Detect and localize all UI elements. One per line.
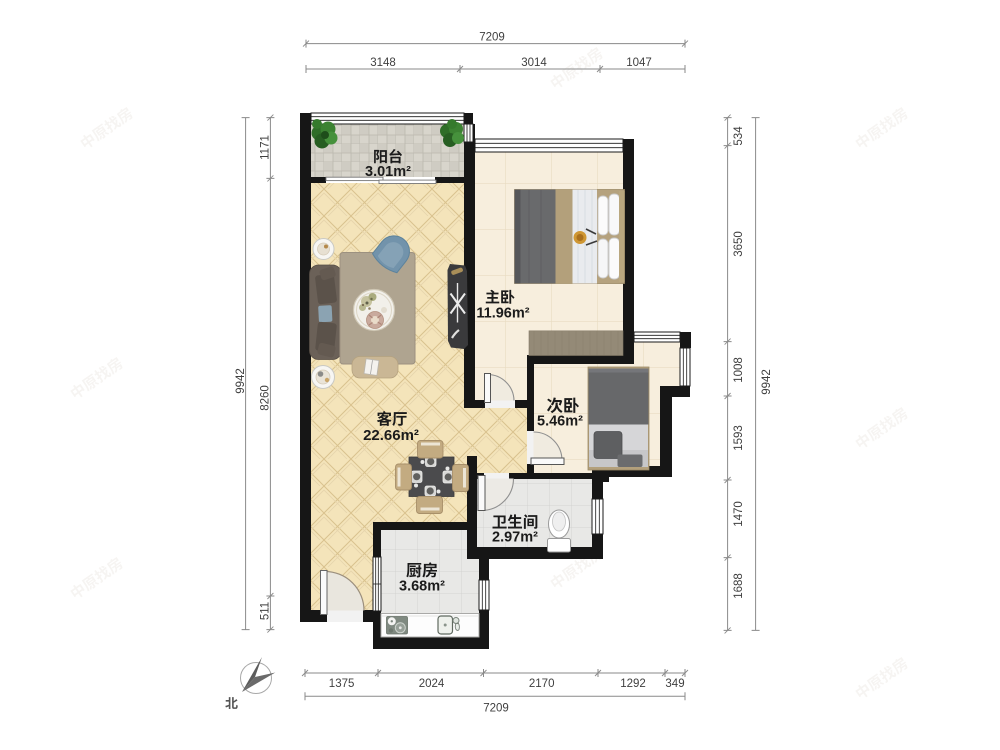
svg-text:3.01m²: 3.01m² [365,164,411,180]
svg-text:534: 534 [733,126,745,146]
svg-text:9942: 9942 [235,368,247,394]
svg-text:7209: 7209 [483,703,509,715]
svg-text:3650: 3650 [733,231,745,257]
svg-text:5.46m²: 5.46m² [537,414,583,430]
svg-text:2024: 2024 [419,678,445,690]
svg-text:8260: 8260 [260,385,272,411]
svg-text:1688: 1688 [733,573,745,599]
svg-text:3.68m²: 3.68m² [399,579,445,595]
svg-text:1047: 1047 [626,57,652,69]
svg-text:3014: 3014 [521,57,547,69]
svg-text:3148: 3148 [370,57,396,69]
svg-text:1593: 1593 [733,425,745,451]
svg-text:1008: 1008 [733,357,745,383]
svg-text:1292: 1292 [620,678,646,690]
svg-text:22.66m²: 22.66m² [363,427,419,444]
svg-text:511: 511 [260,602,272,620]
svg-text:2.97m²: 2.97m² [492,530,538,546]
svg-text:1470: 1470 [733,501,745,527]
svg-text:9942: 9942 [761,369,773,395]
svg-text:7209: 7209 [479,32,505,44]
svg-text:349: 349 [665,678,684,690]
svg-text:1375: 1375 [329,678,355,690]
svg-text:11.96m²: 11.96m² [476,306,529,322]
svg-text:2170: 2170 [529,678,555,690]
svg-text:1171: 1171 [260,135,272,160]
